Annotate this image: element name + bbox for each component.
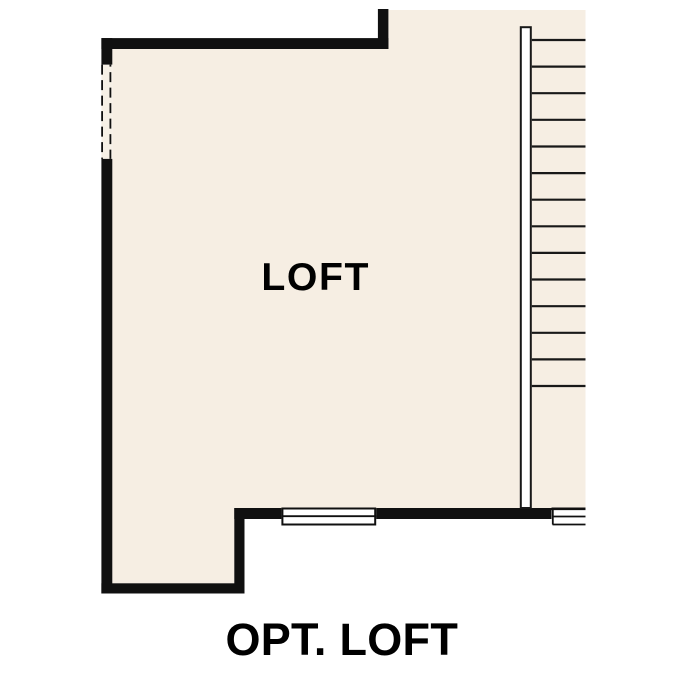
svg-text:OPT. LOFT: OPT. LOFT	[225, 614, 458, 665]
svg-text:LOFT: LOFT	[261, 256, 370, 299]
